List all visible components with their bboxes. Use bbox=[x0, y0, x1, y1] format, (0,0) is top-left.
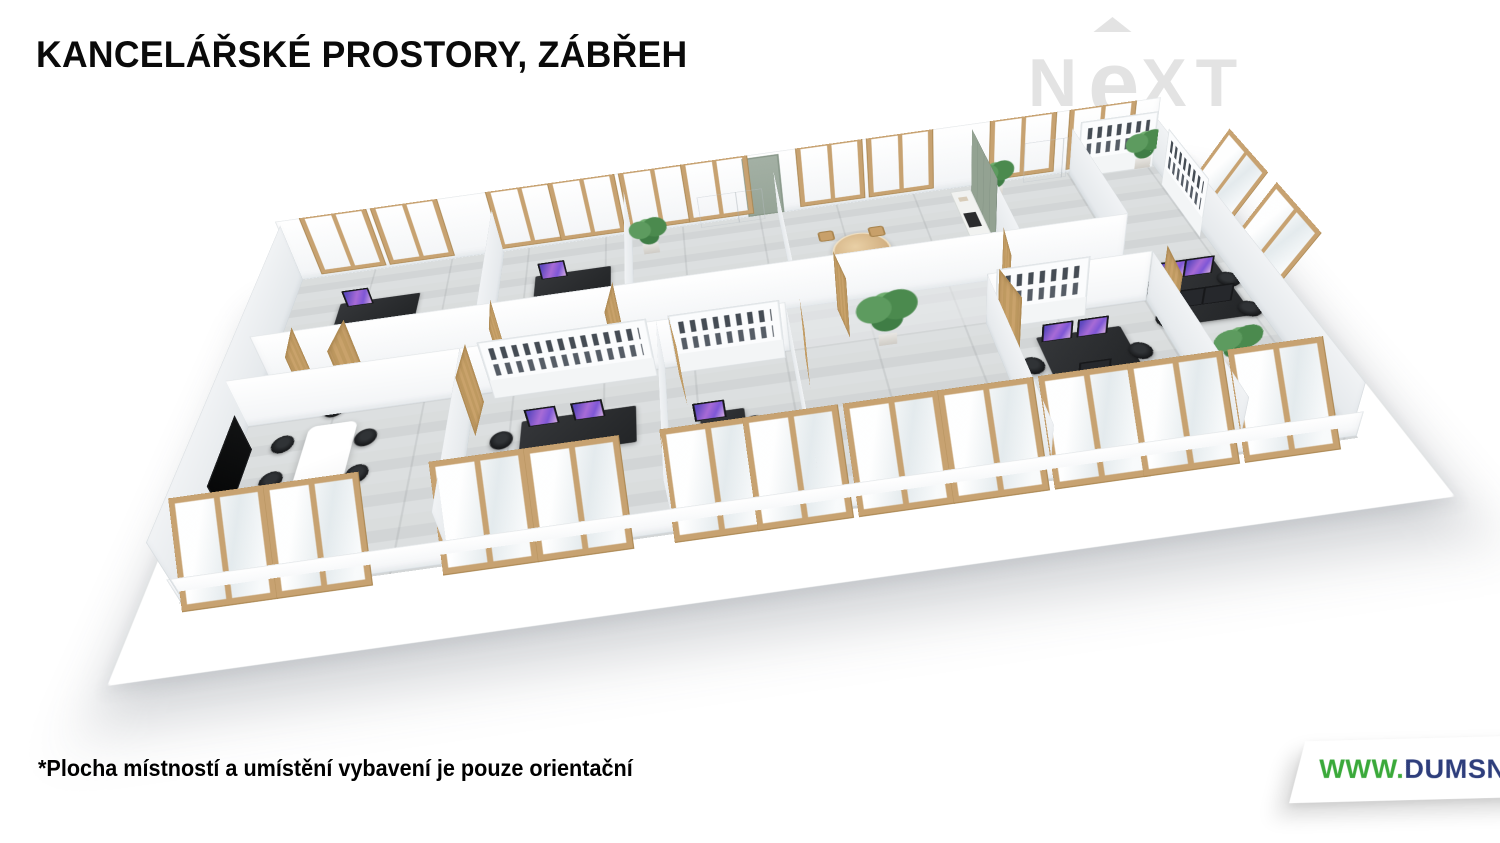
window-front-leaning bbox=[843, 390, 954, 516]
office-chair bbox=[489, 430, 514, 451]
office-chair bbox=[268, 434, 296, 455]
disclaimer-text: *Plocha místností a umístění vybavení je… bbox=[38, 755, 633, 782]
window-front-leaning bbox=[937, 377, 1048, 503]
window-front-leaning bbox=[1127, 350, 1239, 476]
dining-chair bbox=[867, 225, 886, 237]
floorplan-perspective bbox=[80, 0, 1420, 802]
floorplan-3d bbox=[179, 160, 1358, 603]
potted-plant bbox=[853, 286, 919, 350]
office-chair bbox=[352, 427, 379, 448]
window-front-leaning bbox=[742, 404, 853, 530]
window-back bbox=[867, 127, 933, 197]
window-back bbox=[299, 207, 386, 274]
window-back bbox=[547, 172, 625, 240]
page-title: KANCELÁŘSKÉ PROSTORY, ZÁBŘEH bbox=[36, 34, 687, 76]
white-cabinet bbox=[1023, 137, 1069, 183]
window-front-leaning bbox=[263, 472, 372, 598]
potted-plant bbox=[626, 215, 672, 256]
website-url-domain: DUMSNU. bbox=[1404, 754, 1500, 785]
window-back bbox=[370, 197, 454, 264]
window-back bbox=[796, 137, 865, 206]
window-front-leaning bbox=[168, 485, 277, 611]
website-url-www: WWW. bbox=[1319, 754, 1404, 785]
floorplan-scene bbox=[80, 0, 1420, 802]
website-card: WWW.DUMSNU.COM bbox=[1289, 735, 1500, 804]
bookcase-side bbox=[1162, 128, 1210, 238]
window-front-leaning bbox=[523, 435, 633, 561]
window-front-leaning bbox=[429, 449, 539, 575]
website-url: WWW.DUMSNU.COM bbox=[1297, 738, 1500, 800]
dining-chair bbox=[817, 230, 836, 242]
